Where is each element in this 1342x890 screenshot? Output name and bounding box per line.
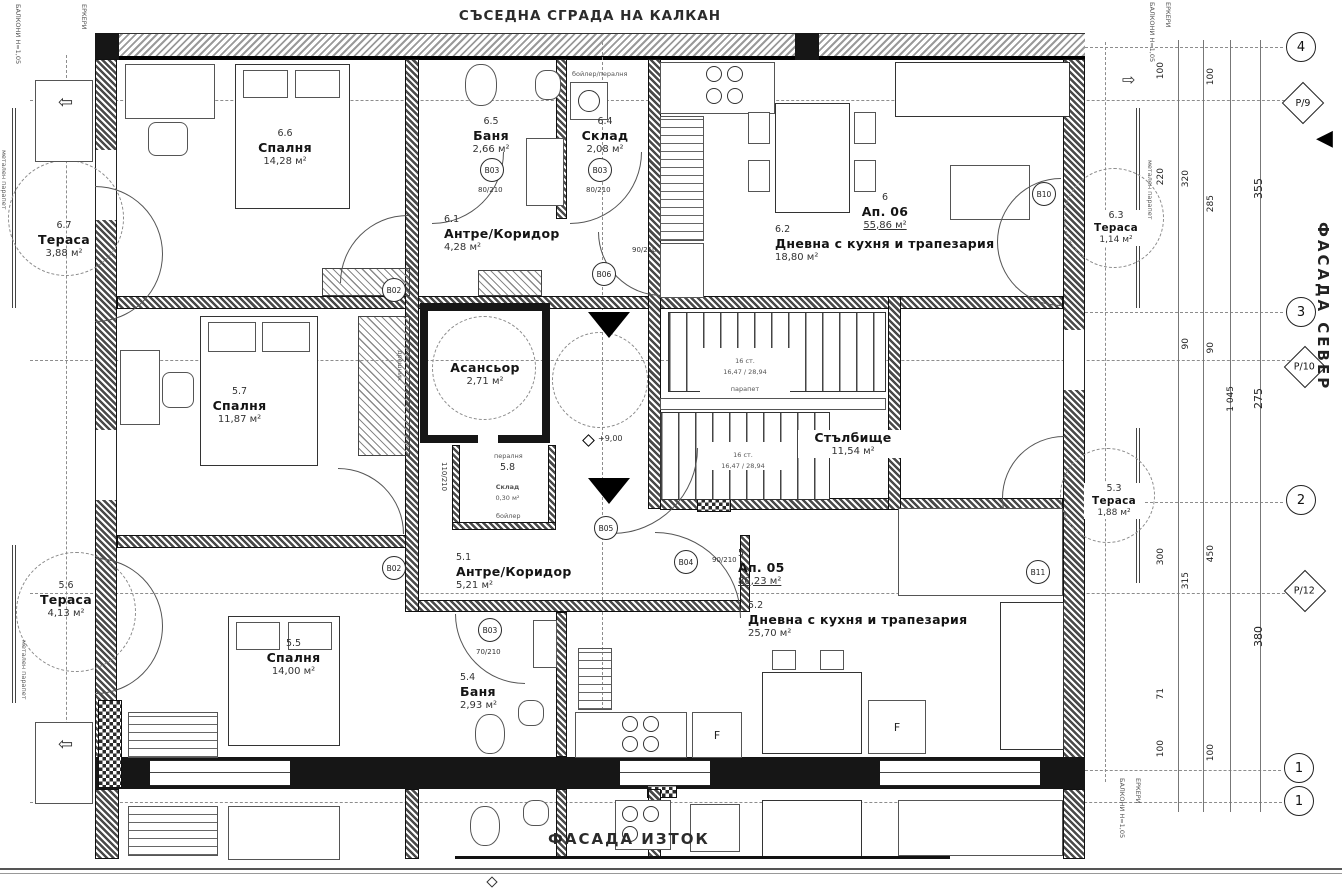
chair xyxy=(854,112,876,144)
stair-riser: 16,47 / 28,94 xyxy=(700,368,790,376)
door-size: 90/210 xyxy=(712,556,737,564)
dimension-label: 275 xyxy=(1252,388,1265,409)
door-tag: B02 xyxy=(382,556,406,580)
entry-arrow-icon: ⇦ xyxy=(58,92,73,113)
grid-label: 3 xyxy=(1297,305,1305,320)
window xyxy=(1063,330,1085,390)
room-number: 6.3 xyxy=(1086,210,1146,222)
entry-arrow-icon: ⇨ xyxy=(1122,70,1135,89)
room-number: 5.7 xyxy=(192,386,287,398)
room-area: 4,13 м² xyxy=(26,608,106,621)
balcony-note: БАЛКОНИ Н=1,05 xyxy=(1148,2,1156,62)
kitchen-cabinet xyxy=(660,116,704,241)
washer-drum xyxy=(578,90,600,112)
room-name: Тераса xyxy=(26,592,106,608)
sofa xyxy=(898,800,1063,856)
room-area: 14,00 м² xyxy=(246,666,341,679)
sofa xyxy=(895,62,1070,117)
facade-arrow-icon: ◀ xyxy=(1316,126,1333,151)
storage-wall xyxy=(452,445,460,530)
dimension-label: 100 xyxy=(1156,62,1166,79)
room-area: 14,28 м² xyxy=(230,156,340,169)
dimension-label: 300 xyxy=(1156,548,1166,565)
stair-steps: 16 ст. xyxy=(735,357,755,365)
room-number: 6.4 xyxy=(565,116,645,128)
stove-burner xyxy=(622,736,638,752)
room-name: Асансьор xyxy=(432,360,538,376)
boiler-washer-label: бойлер/пералня xyxy=(572,70,657,78)
elevator-wall xyxy=(420,435,478,443)
section-marker-p12: Р/12 xyxy=(1284,570,1326,612)
shower xyxy=(526,138,564,206)
sheet-divider xyxy=(0,873,1342,874)
north-tick-icon xyxy=(486,876,497,887)
wall-stub xyxy=(1063,789,1085,859)
room-number: 6.7 xyxy=(24,220,104,232)
room-area: 2,93 м² xyxy=(460,700,527,713)
piano xyxy=(128,712,218,758)
pillow xyxy=(208,322,256,352)
sink xyxy=(523,800,549,826)
window-mullion xyxy=(620,772,710,773)
metal-railing-label: метален парапет xyxy=(20,640,28,700)
kitchen-unit xyxy=(660,243,704,298)
wall-interior-v3 xyxy=(888,296,901,510)
direction-arrow xyxy=(588,312,630,338)
wall-pier-checker xyxy=(98,700,122,788)
level-marker-icon xyxy=(582,434,595,447)
room-area: 1,14 м² xyxy=(1086,235,1146,246)
facade-east-title: ФАСАДА ИЗТОК xyxy=(548,830,710,848)
axis-line-right xyxy=(1105,42,1106,782)
storage-wall xyxy=(452,522,556,530)
door-tag-label: B04 xyxy=(679,558,694,567)
wall-interior-h2 xyxy=(117,535,417,548)
section-label: Р/9 xyxy=(1296,97,1311,108)
dimension-label: 320 xyxy=(1181,170,1191,187)
dimension-label: 355 xyxy=(1252,178,1265,199)
dimension-label: 1 045 xyxy=(1226,386,1236,412)
chair xyxy=(820,650,844,670)
sink xyxy=(535,70,561,100)
lobby-clearance-circle xyxy=(552,332,648,428)
bay-note: ЕРКЕРИ xyxy=(1134,778,1142,804)
door-swing xyxy=(655,532,741,618)
room-label-terrace-53: 5.3 Тераса 1,88 м² xyxy=(1084,483,1144,519)
kitchen-cabinet xyxy=(578,648,612,710)
section-label: Р/10 xyxy=(1294,362,1315,373)
piano xyxy=(128,806,218,856)
wall-stub xyxy=(405,789,419,859)
wardrobe-label: дрешник xyxy=(396,350,404,381)
chair xyxy=(748,112,770,144)
door-tag: B04 xyxy=(674,550,698,574)
elevator-wall xyxy=(420,303,428,443)
sofa xyxy=(1000,602,1064,750)
section-marker-p9: Р/9 xyxy=(1282,82,1324,124)
room-label-hall-51: 5.1 Антре/Коридор 5,21 м² xyxy=(452,552,607,592)
door-size: 90/210 xyxy=(632,246,657,254)
bay-note: ЕРКЕРИ xyxy=(80,4,88,30)
window xyxy=(150,760,290,786)
room-name: Спалня xyxy=(192,398,287,414)
room-label-terrace-67: 6.7 Тераса 3,88 м² xyxy=(24,220,104,260)
room-number: 5.6 xyxy=(26,580,106,592)
door-tag-label: B03 xyxy=(483,626,498,635)
desk xyxy=(120,350,160,425)
stove-burner xyxy=(643,806,659,822)
door-size: 110/210 xyxy=(440,462,448,491)
room-name: Баня xyxy=(460,684,527,700)
sheet-divider xyxy=(0,868,1342,870)
room-number: 6.1 xyxy=(444,214,580,226)
dimension-label: 90 xyxy=(1181,338,1191,349)
window xyxy=(95,430,117,500)
dimension-label: 71 xyxy=(1156,688,1166,699)
dimension-label: 450 xyxy=(1206,545,1216,562)
grid-bubble-4: 4 xyxy=(1286,32,1316,62)
stair-riser: 16,47 / 28,94 xyxy=(698,462,788,470)
room-label-bedroom-66: 6.6 Спалня 14,28 м² xyxy=(230,128,340,168)
dimension-label: 100 xyxy=(1156,740,1166,757)
door-tag: B03 xyxy=(588,158,612,182)
dining-table xyxy=(775,103,850,213)
room-name: Тераса xyxy=(1084,495,1144,508)
neighbor-building-label: СЪСЕДНА СГРАДА НА КАЛКАН xyxy=(410,8,770,24)
apartment-number: 5 xyxy=(738,548,828,560)
entry-arrow-icon: ⇦ xyxy=(58,734,73,755)
fridge-label: F xyxy=(714,729,720,742)
grid-line-3 xyxy=(1085,312,1283,313)
grid-bubble-1b: 1 xyxy=(1284,786,1314,816)
door-swing xyxy=(95,186,163,254)
apartment-area: 80,23 м² xyxy=(738,576,828,589)
chair xyxy=(772,650,796,670)
stair-steps: 16 ст. xyxy=(733,451,753,459)
door-tag-label: B03 xyxy=(485,166,500,175)
wall-stub xyxy=(95,789,119,859)
room-name: Антре/Коридор xyxy=(456,564,607,580)
neighbor-building-band xyxy=(95,33,1085,60)
door-swing xyxy=(340,215,408,283)
fridge: F xyxy=(868,700,926,754)
stove-burner xyxy=(622,716,638,732)
door-size: 80/210 xyxy=(586,186,611,194)
dimension-label: 90 xyxy=(1206,342,1216,353)
grid-label: 1 xyxy=(1295,794,1303,809)
door-tag-label: B03 xyxy=(593,166,608,175)
room-label-storage-58: 5.8 Склад 0,30 м² xyxy=(470,462,545,502)
door-swing-entrance xyxy=(612,448,698,534)
door-tag-label: B05 xyxy=(599,524,614,533)
room-label-ap05: 5 Ап. 05 80,23 м² xyxy=(738,548,828,588)
room-name: Склад xyxy=(496,483,520,491)
door-swing xyxy=(95,626,163,694)
stove-burner xyxy=(727,88,743,104)
room-label-storage-64: 6.4 Склад 2,08 м² xyxy=(565,116,645,156)
chair xyxy=(162,372,194,408)
apartment-name: Ап. 05 xyxy=(738,560,828,576)
grid-label: 1 xyxy=(1295,761,1303,776)
elevator-wall xyxy=(420,303,550,311)
room-number: 6.6 xyxy=(230,128,340,140)
window-mullion xyxy=(150,772,290,773)
wall-interior-v5 xyxy=(556,612,567,757)
bay-note: ЕРКЕРИ xyxy=(1164,2,1172,28)
grid-line-1 xyxy=(1085,770,1281,771)
room-label-terrace-56: 5.6 Тераса 4,13 м² xyxy=(26,580,106,620)
room-label-bath-65: 6.5 Баня 2,66 м² xyxy=(455,116,527,156)
metal-railing-label: метален парапет xyxy=(1146,160,1154,220)
stove-burner xyxy=(643,736,659,752)
room-name: Тераса xyxy=(1086,222,1146,235)
dimension-label: 100 xyxy=(1206,68,1216,85)
stove-burner xyxy=(706,88,722,104)
apartment-number: 6 xyxy=(840,192,930,204)
facade-north-title: ФАСАДА СЕВЕР xyxy=(1314,222,1332,391)
elevator-wall xyxy=(498,435,550,443)
room-number: 5.1 xyxy=(456,552,607,564)
dimension-label: 220 xyxy=(1156,168,1166,185)
stove-burner xyxy=(727,66,743,82)
wall-stub xyxy=(556,789,567,859)
room-area: 0,30 м² xyxy=(470,494,545,502)
grid-label: 4 xyxy=(1297,40,1305,55)
door-tag: B03 xyxy=(478,618,502,642)
door-tag: B05 xyxy=(594,516,618,540)
door-swing xyxy=(95,254,163,322)
door-tag: B11 xyxy=(1026,560,1050,584)
floor-plan-sheet: СЪСЕДНА СГРАДА НА КАЛКАН Асансьор 2,71 м… xyxy=(0,0,1342,890)
wardrobe xyxy=(358,316,410,456)
balcony-note: БАЛКОНИ Н=1,05 xyxy=(14,4,22,64)
room-name: Антре/Коридор xyxy=(444,226,580,242)
room-area: 2,71 м² xyxy=(432,376,538,389)
fridge-label: F xyxy=(894,721,900,734)
dimension-label: 285 xyxy=(1206,195,1216,212)
metal-railing-label: метален парапет xyxy=(0,150,8,210)
room-area: 11,54 м² xyxy=(798,446,908,459)
stove-burner xyxy=(622,806,638,822)
wall-pier xyxy=(95,33,119,60)
fridge: F xyxy=(692,712,742,758)
door-tag-label: B02 xyxy=(387,286,402,295)
storage-wall xyxy=(548,445,556,530)
toilet xyxy=(475,714,505,754)
window xyxy=(880,760,1040,786)
chair xyxy=(854,160,876,192)
grid-bubble-2: 2 xyxy=(1286,485,1316,515)
chair xyxy=(148,122,188,156)
stair-note-lower: 16 ст. 16,47 / 28,94 xyxy=(698,442,788,470)
grid-bubble-1: 1 xyxy=(1284,753,1314,783)
wall-interior-h1 xyxy=(117,296,1063,309)
toilet xyxy=(465,64,497,106)
door-tag-label: B02 xyxy=(387,564,402,573)
dimension-label: 315 xyxy=(1181,572,1191,589)
room-area: 4,28 м² xyxy=(444,242,580,255)
door-size: 80/210 xyxy=(478,186,503,194)
door-tag-label: B06 xyxy=(597,270,612,279)
room-area: 1,88 м² xyxy=(1084,508,1144,519)
window-mullion xyxy=(880,772,1040,773)
room-number: 5.5 xyxy=(246,638,341,650)
balcony-note: БАЛКОНИ Н=1,05 xyxy=(1118,778,1126,838)
pillow xyxy=(243,70,288,98)
toilet xyxy=(470,806,500,846)
room-area: 11,87 м² xyxy=(192,414,287,427)
pillow xyxy=(262,322,310,352)
dimension-label: 100 xyxy=(1206,744,1216,761)
grid-label: 2 xyxy=(1297,493,1305,508)
room-name: Баня xyxy=(455,128,527,144)
bed xyxy=(228,806,340,860)
wall-outer-right xyxy=(1063,59,1085,759)
apartment-name: Ап. 06 xyxy=(840,204,930,220)
caption-underline xyxy=(455,856,950,859)
desk xyxy=(125,64,215,119)
room-number: 5.3 xyxy=(1084,483,1144,495)
terrace-railing xyxy=(12,545,16,703)
pillow xyxy=(295,70,340,98)
door-tag: B02 xyxy=(382,278,406,302)
washer-label: пералня xyxy=(494,452,523,460)
door-tag: B03 xyxy=(480,158,504,182)
dimension-line xyxy=(1178,40,1179,812)
dimension-line xyxy=(1260,40,1261,812)
door-tag-label: B10 xyxy=(1037,190,1052,199)
door-tag: B10 xyxy=(1032,182,1056,206)
room-label-hall-61: 6.1 Антре/Коридор 4,28 м² xyxy=(430,214,580,254)
shower xyxy=(533,620,557,668)
chair xyxy=(748,160,770,192)
section-label: Р/12 xyxy=(1294,586,1315,597)
dimension-label: 380 xyxy=(1252,626,1265,647)
room-label-staircase: Стълбище 11,54 м² xyxy=(798,430,908,458)
grid-line-4 xyxy=(1085,47,1283,48)
door-swing xyxy=(1002,436,1064,498)
room-name: Склад xyxy=(565,128,645,144)
dining-table xyxy=(762,672,862,754)
stove-burner xyxy=(706,66,722,82)
room-name: Спалня xyxy=(230,140,340,156)
dimension-line xyxy=(1203,40,1204,812)
stair-handrail xyxy=(660,398,886,410)
room-name: Тераса xyxy=(24,232,104,248)
boiler-label: бойлер xyxy=(496,512,521,520)
room-label-bedroom-57: 5.7 Спалня 11,87 м² xyxy=(192,386,287,426)
wall-pier xyxy=(795,33,819,60)
room-number: 6.5 xyxy=(455,116,527,128)
room-name: Стълбище xyxy=(798,430,908,446)
closet xyxy=(478,270,542,296)
door-size: 70/210 xyxy=(476,648,501,656)
window xyxy=(620,760,710,786)
dining-table xyxy=(762,800,862,858)
stove-burner xyxy=(643,716,659,732)
room-area: 3,88 м² xyxy=(24,248,104,261)
elevator-wall xyxy=(542,303,550,443)
room-label-terrace-63: 6.3 Тераса 1,14 м² xyxy=(1086,210,1146,246)
door-tag: B06 xyxy=(592,262,616,286)
grid-bubble-3: 3 xyxy=(1286,297,1316,327)
stair-note-upper: 16 ст. 16,47 / 28,94 парапет xyxy=(700,348,790,396)
room-label-elevator: Асансьор 2,71 м² xyxy=(432,360,538,388)
room-label-bedroom-55: 5.5 Спалня 14,00 м² xyxy=(246,638,341,678)
level-marker: +9,00 xyxy=(598,434,623,443)
room-name: Спалня xyxy=(246,650,341,666)
door-swing xyxy=(338,468,404,534)
dimension-line xyxy=(1230,40,1231,812)
wall-pier-checker xyxy=(697,498,731,512)
room-number: 5.8 xyxy=(470,462,545,474)
door-tag-label: B11 xyxy=(1031,568,1046,577)
parapet-label: парапет xyxy=(731,385,759,393)
room-area: 5,21 м² xyxy=(456,580,607,593)
